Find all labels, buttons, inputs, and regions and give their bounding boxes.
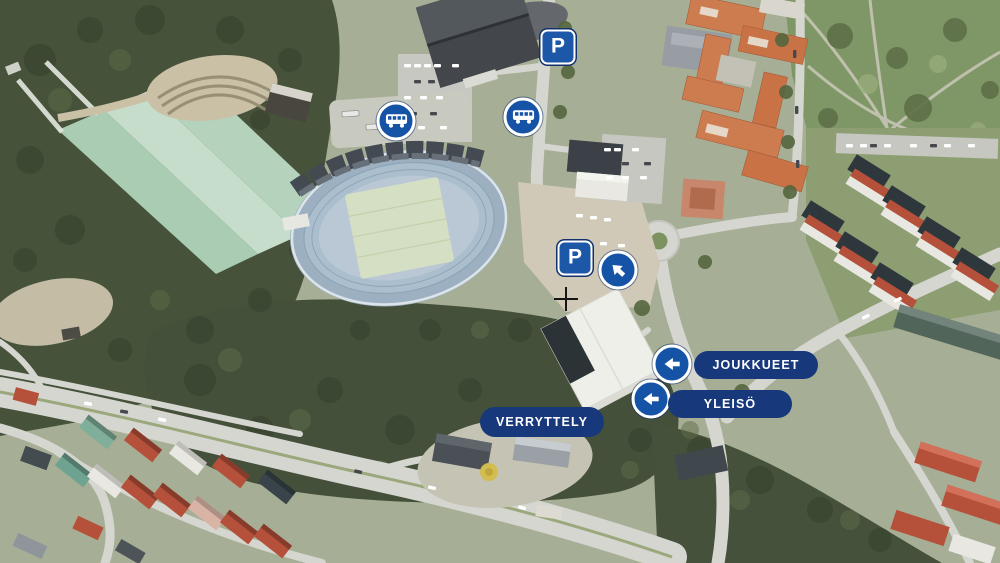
arrow-left-icon — [653, 345, 692, 384]
parking-sign-icon: P — [541, 30, 576, 65]
parking-sign-letter: P — [568, 247, 582, 268]
label-yleiso-text: YLEISÖ — [704, 397, 756, 411]
aerial-photo — [0, 0, 1000, 563]
label-joukkueet: JOUKKUEET — [694, 351, 818, 379]
label-verryttely-text: VERRYTTELY — [496, 415, 588, 429]
parking-sign-icon: P — [558, 241, 593, 276]
venue-aerial-map: P P — [0, 0, 1000, 563]
arrow-left-icon — [632, 380, 671, 419]
label-verryttely: VERRYTTELY — [480, 407, 604, 437]
parking-sign-letter: P — [551, 36, 565, 57]
crosshair-icon — [553, 286, 579, 312]
bus-sign-icon — [377, 102, 416, 141]
label-yleiso: YLEISÖ — [668, 390, 792, 418]
arrow-up-left-icon — [599, 251, 638, 290]
bus-sign-icon — [504, 98, 543, 137]
label-joukkueet-text: JOUKKUEET — [713, 358, 800, 372]
